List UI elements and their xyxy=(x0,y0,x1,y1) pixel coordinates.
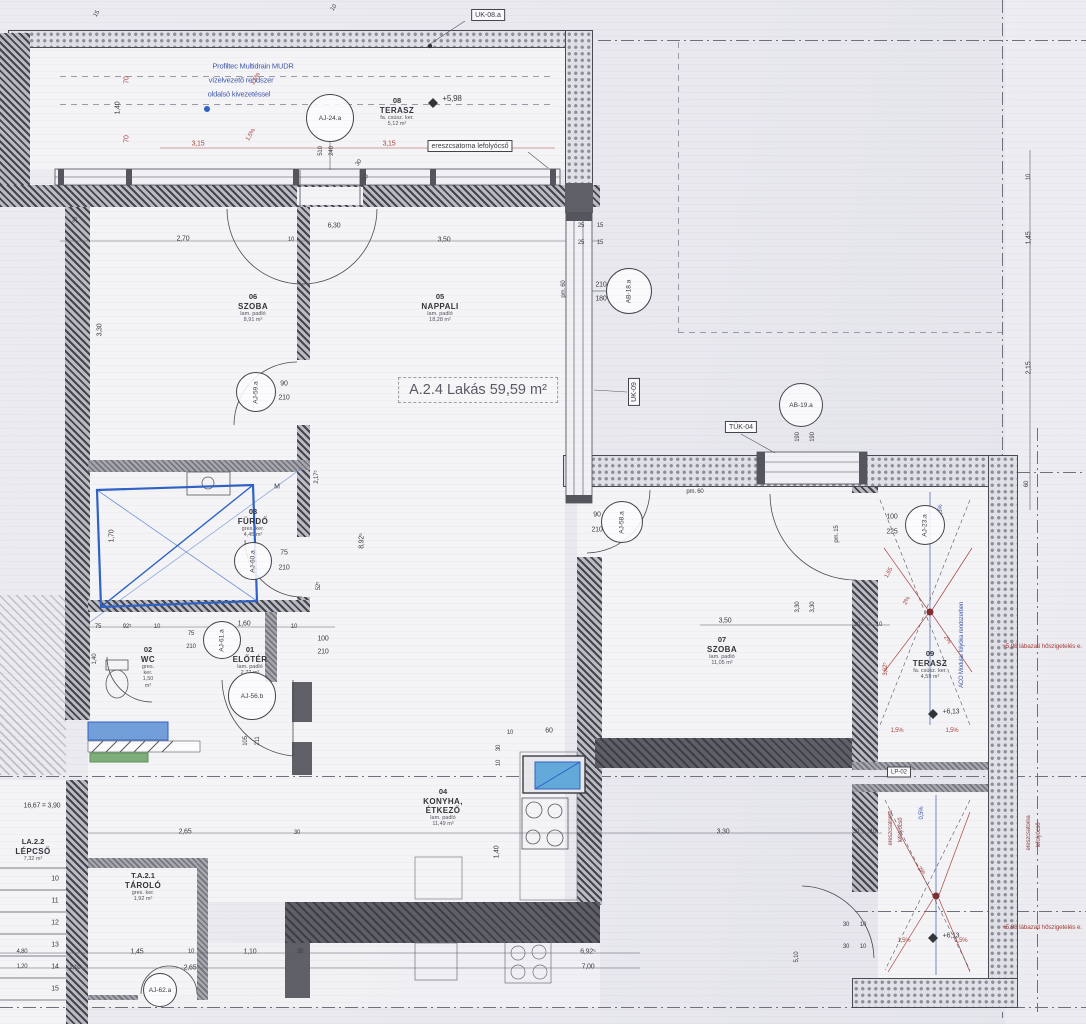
room-label-08: 08TERASZfa. csúsz. ker.5,12 m² xyxy=(380,97,414,127)
dim-text: +5,98 lábazati hőszigetelés e. xyxy=(1002,644,1082,651)
dim-text: 3,15 xyxy=(192,141,205,148)
dim-text: pm. 15 xyxy=(834,525,840,542)
dim-text: 3,62⁵ xyxy=(883,662,889,675)
dim-text: 105 xyxy=(243,736,249,745)
box-label-uk-08-a: UK-08.a xyxy=(471,9,505,21)
dim-text: 75 xyxy=(95,624,101,630)
room-label-06: 06SZOBAlam. padló8,91 m² xyxy=(238,293,268,323)
dim-text: 240 xyxy=(329,146,335,155)
tag-aj-58-a: AJ-58.a xyxy=(601,501,643,543)
dim-text: lefolyócső xyxy=(898,818,904,843)
room-area: 5,12 m² xyxy=(380,121,414,127)
room-area: 4,45 m² xyxy=(238,532,268,538)
room-label-09: 09TERASZfa. csúsz. ker.4,59 m² xyxy=(913,650,947,680)
dim-text: 15 xyxy=(597,223,603,229)
tag-aj-61-a: AJ-61.a xyxy=(203,621,241,659)
dim-text: 2,17⁵ xyxy=(314,470,320,483)
room-label-05: 05NAPPALIlam. padló18,28 m² xyxy=(421,293,458,323)
dim-text: 8,92⁵ xyxy=(359,533,366,549)
dim-text: 100 xyxy=(886,514,897,521)
room-label-la-2-2: LA.2.2LÉPCSŐ7,32 m² xyxy=(15,838,50,862)
dim-text: 10 xyxy=(188,949,194,955)
dim-text: 225 xyxy=(886,529,897,536)
dim-text: M xyxy=(274,484,280,491)
tag-aj-24-a: AJ-24.a xyxy=(306,94,354,142)
dim-text: pm. 60 xyxy=(686,489,703,495)
tag-ab-18-a: AB-18.a xyxy=(606,268,652,314)
room-label-04: 04KONYHA, ÉTKEZŐlam. padló11,49 m² xyxy=(423,788,463,828)
dim-text: 210 xyxy=(186,644,195,650)
dim-text: 3,50 xyxy=(438,237,451,244)
dim-text: 10 xyxy=(291,624,297,630)
dim-text: 1,10 xyxy=(244,949,257,956)
dim-text: 190 xyxy=(795,432,801,441)
dim-text: ereszcsatorna xyxy=(1026,815,1032,850)
room-name: KONYHA, ÉTKEZŐ xyxy=(423,797,463,815)
tag-label: AJ-23.a xyxy=(922,514,929,536)
cooktop xyxy=(522,798,568,849)
dim-text: 3,30 xyxy=(717,829,730,836)
room-name: WC xyxy=(141,655,155,664)
room-number: 09 xyxy=(913,650,947,659)
tag-label: AJ-56.b xyxy=(241,693,263,700)
dim-text: 16,67 = 3,90 xyxy=(24,803,61,810)
stair-step-number: 15 xyxy=(51,986,58,993)
apartment-title: A.2.4 Lakás 59,59 m² xyxy=(398,377,558,403)
dim-text: 10 xyxy=(860,944,866,950)
dim-text: 210 xyxy=(278,565,289,572)
dim-text: 1,5% xyxy=(891,728,904,734)
bathtub-hand-drawn xyxy=(90,468,302,622)
dim-text: 1,40 xyxy=(494,846,501,859)
dim-text: 0,5% xyxy=(919,807,925,820)
dimension-chains xyxy=(0,150,1030,968)
dim-text: 30 xyxy=(496,745,502,751)
dim-text: 10 xyxy=(288,237,294,243)
dim-text: 30 xyxy=(294,830,300,836)
room-name: LÉPCSŐ xyxy=(15,847,50,856)
room-name: FÜRDŐ xyxy=(238,517,268,526)
dim-text: 210 xyxy=(278,395,289,402)
room-name: TÁROLÓ xyxy=(125,881,161,890)
room-number: 08 xyxy=(380,97,414,106)
kitchen-sink xyxy=(523,756,585,793)
stair-step-number: 11 xyxy=(52,898,59,905)
dim-text: 1,45 xyxy=(1026,232,1033,245)
dim-text: 3,30 xyxy=(97,324,104,337)
tag-label: AJ-61.a xyxy=(219,629,226,651)
stair-step-number: 12 xyxy=(51,920,58,927)
dim-text: 1,40 xyxy=(92,654,98,665)
floor-plan-sheet: A.2.4 Lakás 59,59 m² 06SZOBAlam. padló8,… xyxy=(0,0,1086,1024)
dim-text: 211 xyxy=(255,737,261,746)
dim-text: 60 xyxy=(545,728,552,735)
dim-text: 3,15 xyxy=(383,141,396,148)
tag-aj-56-b: AJ-56.b xyxy=(228,672,276,720)
room-area: 1,50 m² xyxy=(141,676,155,689)
dim-text: 510 xyxy=(318,146,324,155)
stair-step-number: 13 xyxy=(51,942,58,949)
dim-text: 10 xyxy=(507,730,513,736)
window-uk09 xyxy=(566,213,627,503)
dim-text: 2,70 xyxy=(177,236,190,243)
dim-text: 30 xyxy=(843,922,849,928)
stair-step-number: 10 xyxy=(51,876,58,883)
room-area: 4,59 m² xyxy=(913,674,947,680)
dim-text: 210 xyxy=(595,282,606,289)
dim-text: 180 xyxy=(595,296,606,303)
tag-aj-60-a: AJ-60.a xyxy=(234,542,272,580)
room-name: SZOBA xyxy=(238,302,268,311)
dim-text: 2,65 xyxy=(184,965,197,972)
dim-text: 60 xyxy=(1024,481,1030,487)
dim-text: 210 xyxy=(317,649,328,656)
stair-treads xyxy=(0,868,66,1000)
window-ab19 xyxy=(741,434,867,484)
dim-text: 1,5% xyxy=(898,938,911,944)
dim-text: 10 xyxy=(496,760,502,766)
dim-text: +5,98 lábazati hőszigetelés e. xyxy=(1002,925,1082,932)
box-label-t-k-04: TÜK-04 xyxy=(725,421,757,433)
tag-label: AB-18.a xyxy=(626,279,633,303)
dim-text: 30 xyxy=(853,829,859,835)
dim-text: 30 xyxy=(843,944,849,950)
dim-text: 70 xyxy=(124,135,131,142)
dim-text: 3,50 xyxy=(719,618,732,625)
dim-text: ACO Modular folyóka rendszerben xyxy=(959,602,965,688)
dim-text: 70 xyxy=(124,76,131,83)
dim-text: 2,10 xyxy=(70,965,81,971)
box-label-ereszcsatorna-lefoly-cs-: ereszcsatorna lefolyócső xyxy=(427,140,512,152)
dim-text: +5,98 xyxy=(442,95,461,103)
room-name: SZOBA xyxy=(707,645,737,654)
toilet xyxy=(106,660,128,698)
level-markers xyxy=(428,98,938,943)
dim-text: 3,30 xyxy=(810,602,816,613)
dim-text: 10 xyxy=(876,622,882,628)
dim-text: 10 xyxy=(870,829,876,835)
room-label-02: 02WCgres. ker.1,50 m² xyxy=(141,646,155,689)
room-number: 06 xyxy=(238,293,268,302)
dim-text: +6,13 xyxy=(943,933,960,940)
tag-label: AJ-62.a xyxy=(149,987,171,994)
dim-text: 52⁵ xyxy=(316,582,322,591)
tag-label: AB-19.a xyxy=(789,402,813,409)
dim-text: 90 xyxy=(280,381,287,388)
room-number: LA.2.2 xyxy=(15,838,50,847)
room-number: 07 xyxy=(707,636,737,645)
dim-text: 30 xyxy=(73,217,79,223)
room-name: ELŐTÉR xyxy=(233,655,268,664)
dim-text: 5,10 xyxy=(794,952,800,963)
dim-text: 2,15 xyxy=(1026,362,1033,375)
room-number: 02 xyxy=(141,646,155,655)
dim-text: vízelvezető rendszer xyxy=(209,76,274,84)
room-area: 18,28 m² xyxy=(421,317,458,323)
room-name: NAPPALI xyxy=(421,302,458,311)
dim-text: 2,65 xyxy=(179,829,192,836)
tag-label: AJ-60.a xyxy=(250,550,257,572)
dim-text: 90 xyxy=(593,512,600,519)
stair-step-number: 14 xyxy=(51,964,58,971)
tag-label: AJ-58.a xyxy=(619,511,626,533)
tag-aj-62-a: AJ-62.a xyxy=(143,973,177,1007)
dim-text: 1,60 xyxy=(238,621,251,628)
dim-text: 30 xyxy=(297,949,303,955)
dim-text: 6,92⁵ xyxy=(580,949,596,956)
dim-text: 1,40 xyxy=(115,102,122,115)
dim-text: 1,70 xyxy=(109,530,116,543)
dim-text: 1,5% xyxy=(946,728,959,734)
dim-text: lefolyócső xyxy=(1036,823,1042,848)
room-area: 11,49 m² xyxy=(423,821,463,827)
dim-text: ereszcsatorna xyxy=(888,810,894,845)
room-label-07: 07SZOBAlam. padló11,05 m² xyxy=(707,636,737,666)
tag-aj-23-a: AJ-23.a xyxy=(905,505,945,545)
room-name: TERASZ xyxy=(380,106,414,115)
room-number: 03 xyxy=(238,508,268,517)
room-finish: gres. ker. xyxy=(141,664,155,677)
washbasin xyxy=(187,472,230,495)
room-label-t-a-2-1: T.A.2.1TÁROLÓgres. ker.1,92 m² xyxy=(125,872,161,902)
room-area: 7,32 m² xyxy=(15,856,50,862)
dim-text: 10 xyxy=(860,922,866,928)
dim-text: 15 xyxy=(597,240,603,246)
dim-text: Profiltec Multidrain MUDR xyxy=(212,62,293,70)
room-area: 1,92 m² xyxy=(125,896,161,902)
dim-text: 25 xyxy=(578,223,584,229)
entry-steps-colored xyxy=(88,722,200,762)
room-number: T.A.2.1 xyxy=(125,872,161,881)
lower-flat-fixtures xyxy=(415,941,551,983)
dim-text: 7,00 xyxy=(582,964,595,971)
dim-text: 190 xyxy=(810,432,816,441)
tag-label: AJ-24.a xyxy=(319,115,341,122)
dim-text: 1,45 xyxy=(131,949,144,956)
dim-text: 3,30 xyxy=(795,602,801,613)
dim-text: 4,80 xyxy=(17,949,28,955)
room-area: 8,91 m² xyxy=(238,317,268,323)
dim-text: 30 xyxy=(854,622,860,628)
dim-text: 75 xyxy=(188,631,194,637)
tag-aj-59-a: AJ-59.a xyxy=(236,372,276,412)
tag-label: AJ-59.a xyxy=(253,381,260,403)
tag-ab-19-a: AB-19.a xyxy=(779,383,823,427)
room-area: 11,05 m² xyxy=(707,660,737,666)
dim-text: 10 xyxy=(154,624,160,630)
dim-text: 25 xyxy=(578,240,584,246)
box-label-lp-02: LP-02 xyxy=(887,767,911,778)
dim-text: 1,20 xyxy=(17,964,28,970)
dim-text: oldalsó kivezetéssel xyxy=(208,90,271,98)
dim-text: pm. 60 xyxy=(561,280,567,297)
dim-text: 92⁵ xyxy=(123,624,132,630)
room-label-03: 03FÜRDŐgres. ker.4,45 m² xyxy=(238,508,268,538)
room-number: 05 xyxy=(421,293,458,302)
box-label-uk-09: UK-09 xyxy=(628,378,640,406)
dim-text: 10 xyxy=(1026,174,1032,180)
room-number: 04 xyxy=(423,788,463,797)
dim-text: 6,30 xyxy=(328,223,341,230)
dim-text: 100 xyxy=(317,636,328,643)
dim-text: 75 xyxy=(280,550,287,557)
dim-text: +6,13 xyxy=(943,709,960,716)
room-name: TERASZ xyxy=(913,659,947,668)
